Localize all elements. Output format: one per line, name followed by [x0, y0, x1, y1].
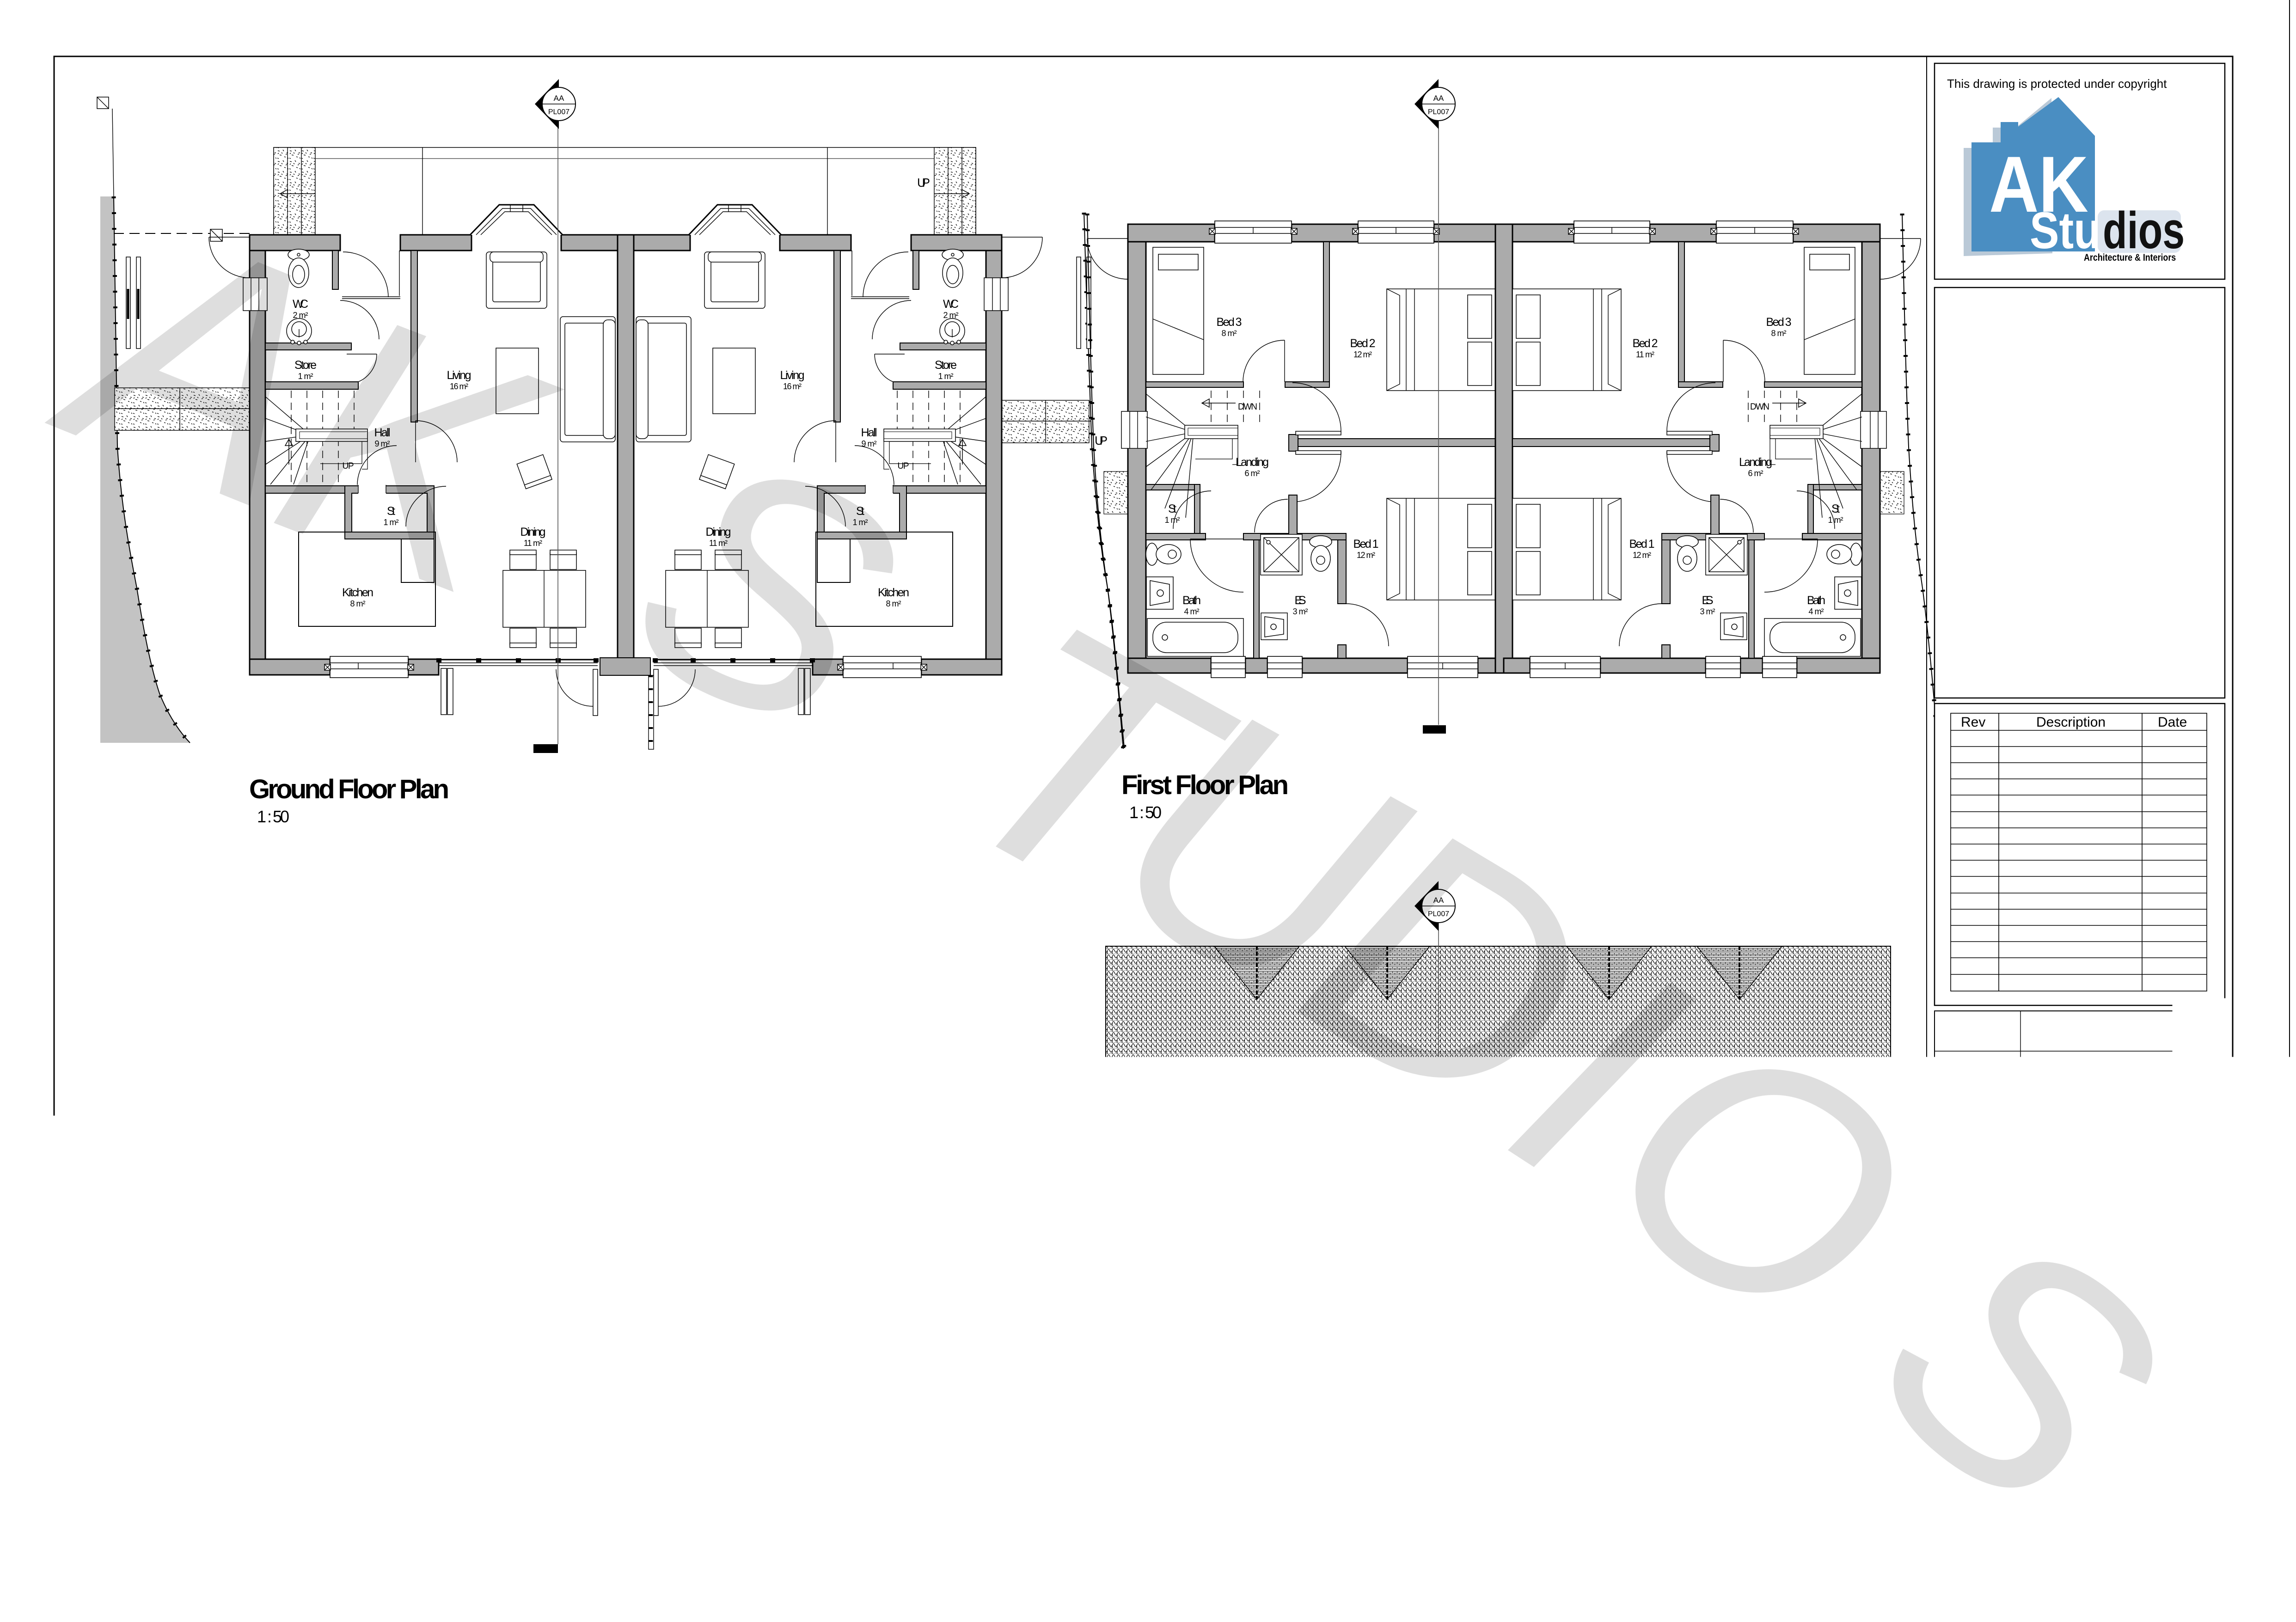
svg-text:1 m²: 1 m²: [1828, 515, 1843, 525]
svg-text:This drawing is protected unde: This drawing is protected under copyrigh…: [1947, 77, 2167, 91]
svg-text:1 : 50: 1 : 50: [2002, 1138, 2025, 1148]
svg-text:PL007: PL007: [1428, 108, 1449, 116]
svg-text:16/12/2019 16:57:56: 16/12/2019 16:57:56: [2253, 1445, 2267, 1560]
svg-text:REV: REV: [2191, 1519, 2212, 1531]
svg-text:0.5: 0.5: [1994, 1104, 2009, 1116]
svg-text:8 m²: 8 m²: [886, 599, 901, 608]
svg-text:AA: AA: [1433, 94, 1444, 103]
svg-text:3 m²: 3 m²: [1700, 607, 1715, 616]
svg-text:1: 1: [2080, 1104, 2086, 1116]
svg-text:m: m: [2157, 1126, 2165, 1136]
svg-text:6 m²: 6 m²: [1748, 469, 1763, 478]
svg-text:1 : 50: 1 : 50: [257, 807, 289, 826]
svg-text:1.5: 1.5: [2102, 1104, 2117, 1116]
svg-text:005: 005: [2096, 1499, 2118, 1513]
svg-text:UP: UP: [1095, 434, 1108, 447]
svg-text:Bed 3: Bed 3: [1766, 316, 1792, 329]
svg-text:12 m²: 12 m²: [1353, 350, 1372, 359]
svg-text:SCALE: SCALE: [2002, 1126, 2033, 1136]
svg-text:16 m²: 16 m²: [783, 382, 802, 391]
svg-text:Roof Plan: Roof Plan: [1129, 1493, 1234, 1523]
svg-text:Landing: Landing: [1739, 456, 1772, 469]
svg-text:Landing: Landing: [1236, 456, 1269, 469]
svg-text:Bed 3: Bed 3: [1217, 316, 1242, 329]
svg-text:PROJECT: PROJECT: [1941, 1167, 1989, 1179]
svg-text:Date: Date: [2158, 715, 2187, 730]
svg-text:DWN: DWN: [1238, 402, 1257, 412]
svg-text:WC: WC: [943, 298, 959, 311]
svg-text:2.5: 2.5: [2156, 1104, 2172, 1116]
svg-text:Bed 1: Bed 1: [1629, 538, 1655, 551]
svg-text:1 m²: 1 m²: [938, 372, 954, 381]
svg-text:2 m²: 2 m²: [943, 311, 959, 320]
svg-text:Description: Description: [2036, 715, 2106, 730]
svg-text:PROJECT NUMBER: PROJECT NUMBER: [2096, 1485, 2191, 1496]
svg-text:4 m²: 4 m²: [1809, 607, 1824, 616]
svg-text:0: 0: [2026, 1104, 2032, 1116]
svg-text:11/17/19: 11/17/19: [2154, 1464, 2205, 1479]
svg-text:Architecture & Interiors: Architecture & Interiors: [2084, 252, 2176, 263]
svg-text:Bath: Bath: [1182, 594, 1201, 607]
svg-text:0.5: 0.5: [2048, 1104, 2063, 1116]
svg-text:St: St: [1168, 502, 1176, 515]
svg-text:dios: dios: [2103, 202, 2185, 259]
svg-text:Stu: Stu: [2030, 202, 2100, 260]
svg-text:11 m²: 11 m²: [524, 539, 542, 548]
svg-text:ES: ES: [1702, 594, 1714, 607]
svg-text:Rev: Rev: [1961, 715, 1985, 730]
svg-text:Store: Store: [935, 359, 957, 372]
svg-text:Bath: Bath: [1807, 594, 1825, 607]
svg-text:PL007: PL007: [548, 108, 569, 116]
svg-text:St: St: [1831, 502, 1840, 515]
svg-text:12 m²: 12 m²: [1633, 551, 1651, 560]
svg-text:Ground Floor Plan: Ground Floor Plan: [249, 774, 449, 804]
svg-text:1 m²: 1 m²: [1165, 515, 1180, 525]
svg-text:DATE: DATE: [2154, 1451, 2180, 1462]
svg-text:Dining: Dining: [520, 526, 546, 539]
svg-text:8 m²: 8 m²: [1771, 329, 1787, 338]
svg-text:UP: UP: [917, 176, 930, 190]
svg-text:Bed 2: Bed 2: [1633, 337, 1658, 350]
svg-text:DWN: DWN: [1750, 402, 1769, 412]
svg-text:6 m²: 6 m²: [1245, 469, 1260, 478]
svg-text:ES: ES: [1295, 594, 1306, 607]
svg-text:11 m²: 11 m²: [1636, 350, 1654, 359]
svg-text:Bed 1: Bed 1: [1353, 538, 1379, 551]
svg-text:12 m²: 12 m²: [1357, 551, 1375, 560]
svg-text:AA: AA: [554, 94, 564, 103]
svg-text:Bed 2: Bed 2: [1350, 337, 1376, 350]
svg-text:2: 2: [2134, 1104, 2140, 1116]
svg-text:Living: Living: [780, 369, 805, 382]
svg-text:8 m²: 8 m²: [1222, 329, 1237, 338]
svg-text:3 m²: 3 m²: [1293, 607, 1308, 616]
svg-text:1 : 50: 1 : 50: [1137, 1526, 1169, 1545]
